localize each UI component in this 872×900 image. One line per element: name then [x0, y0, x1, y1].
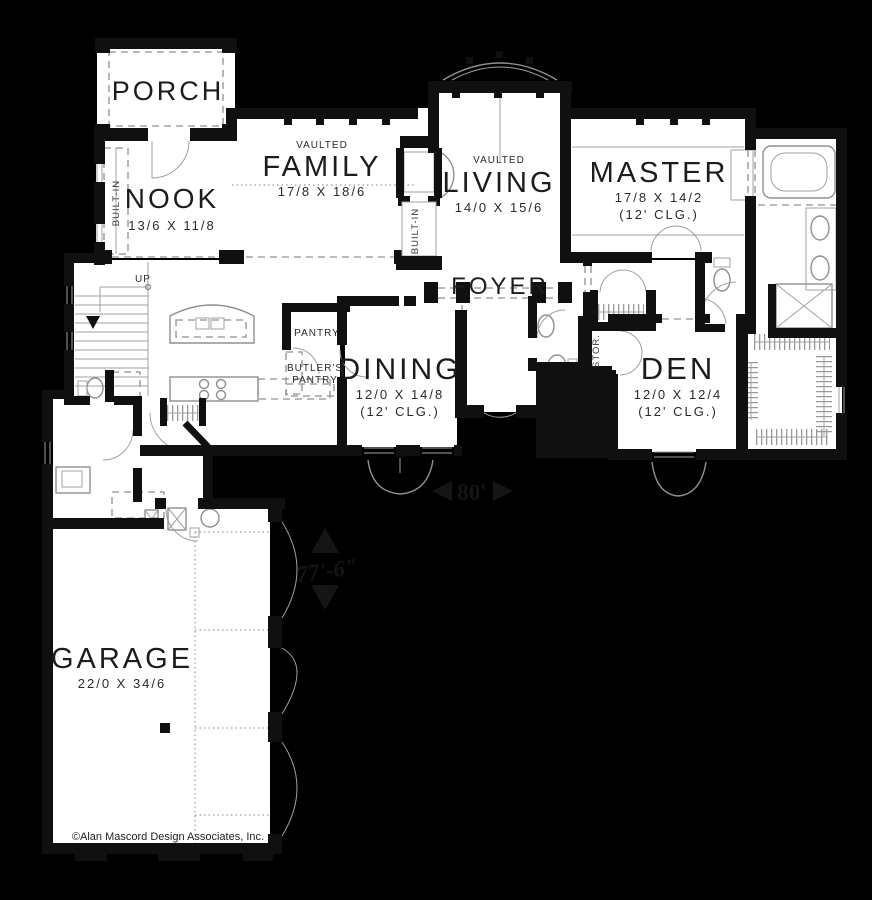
built-in-label-left: BUILT-IN	[111, 180, 122, 226]
family-label: FAMILY	[263, 151, 382, 183]
porch-label: PORCH	[112, 76, 225, 106]
nook-label: NOOK	[125, 183, 219, 214]
foyer-label: FOYER	[451, 273, 549, 300]
garage-label: GARAGE	[51, 643, 193, 675]
nook-dims: 13/6 X 11/8	[128, 218, 216, 233]
butlers-pantry-label-2: PANTRY	[292, 375, 338, 386]
dining-label: DINING	[339, 353, 462, 386]
master-dims: 17/8 X 14/2	[615, 190, 704, 205]
den-ceiling: (12' CLG.)	[638, 404, 718, 419]
den-dims: 12/0 X 12/4	[634, 387, 723, 402]
stairs-up-label: UP	[135, 274, 151, 285]
living-vaulted-label: VAULTED	[473, 155, 525, 166]
family-vaulted-label: VAULTED	[296, 140, 348, 151]
butlers-pantry-label-1: BUTLER'S	[287, 363, 343, 374]
copyright-text: ©Alan Mascord Design Associates, Inc.	[72, 831, 264, 843]
garage-dims: 22/0 X 34/6	[78, 676, 167, 691]
built-in-label-center: BUILT-IN	[410, 208, 421, 254]
master-ceiling: (12' CLG.)	[619, 207, 699, 222]
depth-dimension: 77'-6"	[295, 554, 359, 587]
storage-label: STOR.	[591, 334, 602, 368]
width-dimension: 80'	[457, 480, 486, 505]
living-dims: 14/0 X 15/6	[455, 200, 544, 215]
dining-ceiling: (12' CLG.)	[360, 404, 440, 419]
family-dims: 17/8 X 18/6	[278, 184, 367, 199]
floor-plan-page: PORCH NOOK 13/6 X 11/8 VAULTED FAMILY 17…	[0, 0, 872, 900]
den-label: DEN	[641, 351, 715, 386]
floor-plan-canvas: PORCH NOOK 13/6 X 11/8 VAULTED FAMILY 17…	[0, 0, 872, 900]
master-label: MASTER	[590, 157, 729, 189]
dining-dims: 12/0 X 14/8	[356, 387, 445, 402]
living-label: LIVING	[442, 167, 555, 199]
pantry-label: PANTRY	[294, 328, 340, 339]
